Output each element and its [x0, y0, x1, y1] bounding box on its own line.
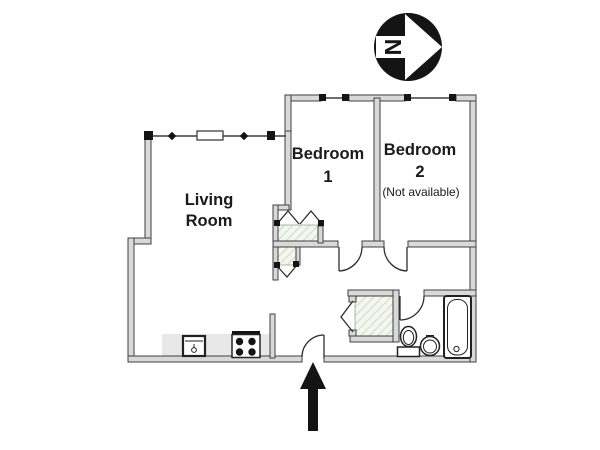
window-tick [240, 132, 248, 140]
bedroom-1-label-line2: 1 [323, 168, 332, 186]
wall [350, 336, 394, 342]
north-arrow-icon: N [374, 13, 442, 81]
entrance-arrow-icon [300, 362, 326, 431]
kitchen-sink-icon [183, 336, 205, 356]
bedroom-divider-wall [374, 98, 380, 246]
wall-cap [449, 94, 456, 101]
wall [145, 133, 151, 240]
wall [318, 226, 323, 243]
wall-cap [404, 94, 411, 101]
wall [128, 238, 134, 362]
bifold-door-icon [274, 211, 324, 226]
bedroom1-closet-hatch [278, 225, 318, 241]
bedroom-2-label: Bedroom [384, 141, 456, 159]
living-room-label: Living [185, 191, 234, 209]
wall [128, 356, 302, 362]
kitchen-stub-wall [270, 314, 275, 358]
wall [273, 241, 338, 247]
floor-plan-page: N Living Room Bedroom 1 Bedroom 2 (Not a… [0, 0, 600, 450]
bedroom-2-door [384, 247, 407, 271]
living-room-label-line2: Room [186, 212, 233, 230]
wall [408, 241, 476, 247]
entry-closet-chevron-door-icon [341, 301, 353, 332]
wall-cap [319, 94, 326, 101]
north-letter: N [380, 39, 406, 56]
bathroom-door [400, 296, 424, 320]
window-tick [168, 132, 176, 140]
bathtub-icon [444, 296, 471, 358]
wall [348, 290, 398, 296]
entry-closet-hatch [355, 296, 393, 336]
wall-cap [267, 131, 275, 140]
bedroom-2-note: (Not available) [382, 185, 459, 199]
bedroom-1-label: Bedroom [292, 145, 364, 163]
wall [456, 95, 476, 101]
entrance-door [302, 335, 324, 358]
bedroom-1-door [339, 247, 362, 271]
wall-cap [342, 94, 349, 101]
toilet-icon [398, 327, 420, 357]
wall-cap [144, 131, 153, 140]
wall [285, 131, 291, 210]
bedroom-2-label-line2: 2 [415, 163, 424, 181]
floor-plan-svg: N Living Room Bedroom 1 Bedroom 2 (Not a… [0, 0, 600, 450]
wall [362, 241, 384, 247]
bathroom-sink-icon [421, 336, 440, 356]
wall [393, 290, 399, 342]
living-room-window [197, 131, 223, 140]
stove-icon [232, 331, 260, 358]
room-labels: Living Room Bedroom 1 Bedroom 2 (Not ava… [185, 141, 460, 230]
